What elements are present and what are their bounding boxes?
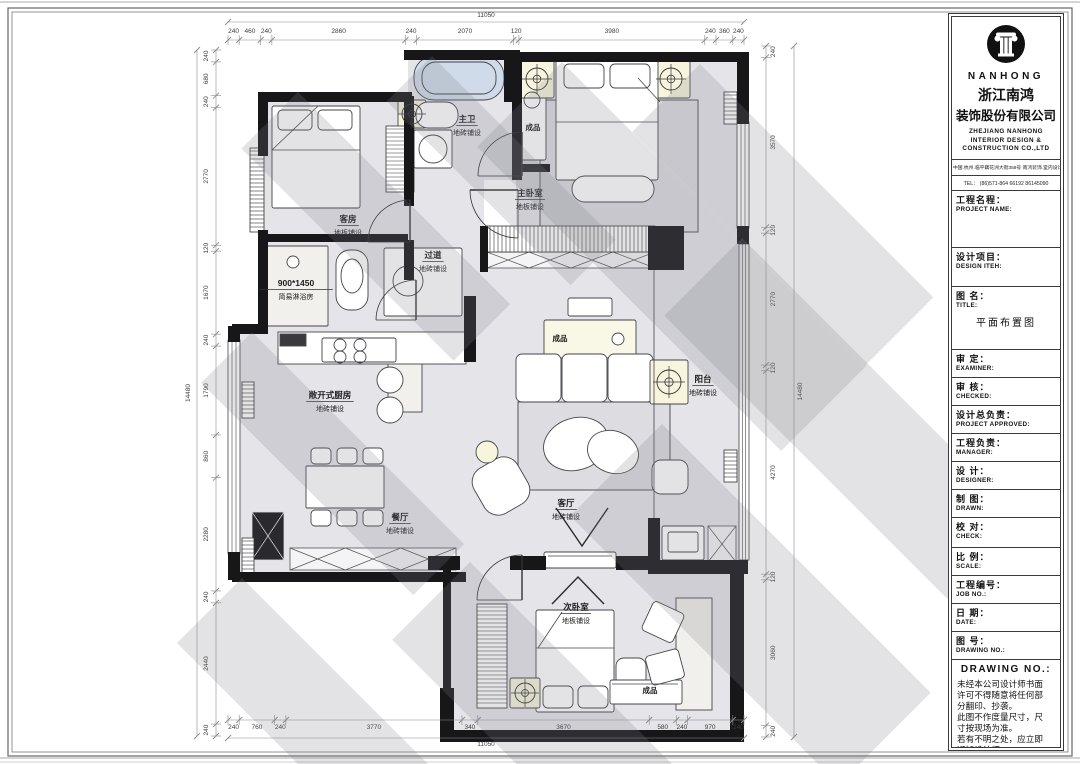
field-label-cn: 制 图：: [956, 492, 1056, 505]
room-label: 成品: [643, 685, 658, 695]
room-label-sub: 简易淋浴房: [279, 292, 314, 301]
dimension-text: 240: [733, 724, 744, 731]
title-block-field: 设计总负责： PROJECT APPROVED:: [952, 406, 1060, 434]
title-block-field: 制 图： DRAWN:: [952, 490, 1060, 518]
dimension-text: 240: [203, 724, 210, 735]
dimension-text: 240: [770, 46, 777, 57]
field-label-en: DRAWN:: [956, 505, 1056, 512]
wall: [510, 556, 546, 570]
field-label-cn: 设计项目：: [956, 250, 1056, 263]
floor-plan: 客房地板铺设主卫地砖铺设主卧室地板铺设过道地砖铺设敞开式厨房地砖铺设餐厅地砖铺设…: [0, 0, 1080, 764]
field-label-cn: 日 期：: [956, 606, 1056, 619]
dimension-text: 240: [770, 725, 777, 736]
dimension-text: 970: [705, 724, 716, 731]
dimension-text: 580: [657, 724, 668, 731]
field-label-en: CHECK:: [956, 533, 1056, 540]
dimension-text: 4270: [770, 465, 777, 480]
wall: [504, 56, 518, 102]
title-block-field: 校 对： CHECK:: [952, 518, 1060, 548]
field-label-cn: 校 对：: [956, 520, 1056, 533]
dimension-text: 11050: [477, 741, 495, 748]
field-label-en: JOB NO.:: [956, 591, 1056, 598]
drawing-note: DRAWING NO.: 未经本公司设计师书面 许可不得随意将任何部 分翻印、抄…: [952, 660, 1060, 749]
title-block-field: 工程负责： MANAGER:: [952, 434, 1060, 462]
dimension-text: 680: [203, 73, 210, 84]
field-label-cn: 工程负责：: [956, 436, 1056, 449]
field-label-en: DESIGN ITEH:: [956, 263, 1056, 270]
field-value: 平面布置图: [956, 314, 1056, 329]
company-name-cn-1: 浙江南鸿: [952, 85, 1060, 105]
company-name-en: ZHEJIANG NANHONG INTERIOR DESIGN & CONST…: [952, 128, 1060, 154]
company-name-cn-2: 装饰股份有限公司: [952, 105, 1060, 124]
dimension-text: 860: [203, 451, 210, 462]
field-label-en: DATE:: [956, 619, 1056, 626]
wall: [404, 50, 520, 60]
field-label-en: PROJECT APPROVED:: [956, 421, 1056, 428]
field-label-cn: 比 例：: [956, 550, 1056, 563]
dimension-text: 120: [203, 242, 210, 253]
field-label-cn: 审 核：: [956, 380, 1056, 393]
dimension-text: 240: [733, 28, 744, 35]
title-block-field: 设 计： DESIGNER:: [952, 462, 1060, 490]
company-header: NANHONG 浙江南鸿 装饰股份有限公司 ZHEJIANG NANHONG I…: [952, 17, 1060, 191]
dimension-text: 460: [245, 28, 256, 35]
dimension-text: 240: [203, 96, 210, 107]
title-block-field: 图 名： TITLE: 平面布置图: [952, 287, 1060, 350]
title-block-field: 审 核： CHECKED:: [952, 378, 1060, 406]
title-block-fields: 工程名程： PROJECT NAME: 设计项目： DESIGN ITEH: 图…: [952, 191, 1060, 660]
dimension-text: 11050: [477, 12, 495, 19]
room-label-sub: 地板铺设: [562, 616, 590, 625]
dimension-text: 120: [511, 28, 522, 35]
drawing-sheet: 客房地板铺设主卫地砖铺设主卧室地板铺设过道地砖铺设敞开式厨房地砖铺设餐厅地砖铺设…: [0, 0, 1080, 764]
dimension-text: 240: [203, 50, 210, 61]
note-header: DRAWING NO.:: [957, 664, 1055, 675]
dimension-text: 14480: [185, 384, 192, 402]
nanhong-logo-icon: [986, 24, 1026, 64]
field-label-cn: 工程编号：: [956, 578, 1056, 591]
title-block-field: 设计项目： DESIGN ITEH:: [952, 248, 1060, 287]
note-body: 未经本公司设计师书面 许可不得随意将任何部 分翻印、抄袭。 此图不作度量尺寸，尺…: [957, 679, 1055, 749]
dimension-text: 2770: [203, 169, 210, 184]
dimension-text: 3980: [605, 28, 620, 35]
field-label-en: CHECKED:: [956, 393, 1056, 400]
dimension-text: 240: [406, 28, 417, 35]
dimension-text: 240: [203, 591, 210, 602]
dimension-text: 240: [261, 28, 272, 35]
dimension-text: 360: [719, 28, 730, 35]
room-label: 成品: [553, 333, 568, 343]
dimension-text: 240: [705, 28, 716, 35]
field-label-cn: 图 号：: [956, 634, 1056, 647]
dimension-text: 240: [228, 724, 239, 731]
title-block-field: 工程编号： JOB NO.:: [952, 576, 1060, 604]
wall: [258, 242, 268, 334]
room-label: 900*1450: [278, 278, 315, 288]
dimension-text: 1670: [203, 285, 210, 300]
title-block-field: 日 期： DATE:: [952, 604, 1060, 632]
field-label-en: DESIGNER:: [956, 477, 1056, 484]
room-label: 次卧室: [563, 602, 589, 612]
field-label-en: EXAMINER:: [956, 365, 1056, 372]
room-label-sub: 地砖铺设: [689, 388, 717, 397]
field-label-en: SCALE:: [956, 563, 1056, 570]
dimension-text: 240: [228, 28, 239, 35]
title-block-field: 审 定： EXAMINER:: [952, 350, 1060, 378]
dimension-text: 240: [676, 724, 687, 731]
dimension-text: 2860: [331, 28, 346, 35]
field-label-cn: 图 名：: [956, 289, 1056, 302]
field-label-cn: 工程名程：: [956, 193, 1056, 206]
title-block: NANHONG 浙江南鸿 装饰股份有限公司 ZHEJIANG NANHONG I…: [948, 13, 1064, 751]
dimension-text: 2280: [203, 527, 210, 542]
wall: [480, 226, 488, 272]
field-label-en: MANAGER:: [956, 449, 1056, 456]
company-address: 中国.杭州.临平藕花洲大街358号 南鸿装饰.室内设计: [952, 159, 1060, 175]
field-label-en: TITLE:: [956, 302, 1056, 309]
wall: [228, 326, 240, 342]
wall: [512, 52, 746, 62]
field-label-en: DRAWING NO.:: [956, 647, 1056, 654]
room-label: 客厅: [556, 498, 575, 508]
title-block-field: 图 号： DRAWING NO.:: [952, 632, 1060, 660]
field-label-en: PROJECT NAME:: [956, 206, 1056, 213]
dimension-text: 240: [203, 334, 210, 345]
brand-name: NANHONG: [952, 71, 1060, 82]
company-tel: TEL： (86)571-864 66192 86145090: [952, 175, 1060, 190]
title-block-field: 工程名程： PROJECT NAME:: [952, 191, 1060, 248]
title-block-field: 比 例： SCALE:: [952, 548, 1060, 576]
field-label-cn: 设 计：: [956, 464, 1056, 477]
field-label-cn: 审 定：: [956, 352, 1056, 365]
field-label-cn: 设计总负责：: [956, 408, 1056, 421]
dimension-text: 340: [464, 724, 475, 731]
dimension-text: 2070: [458, 28, 473, 35]
